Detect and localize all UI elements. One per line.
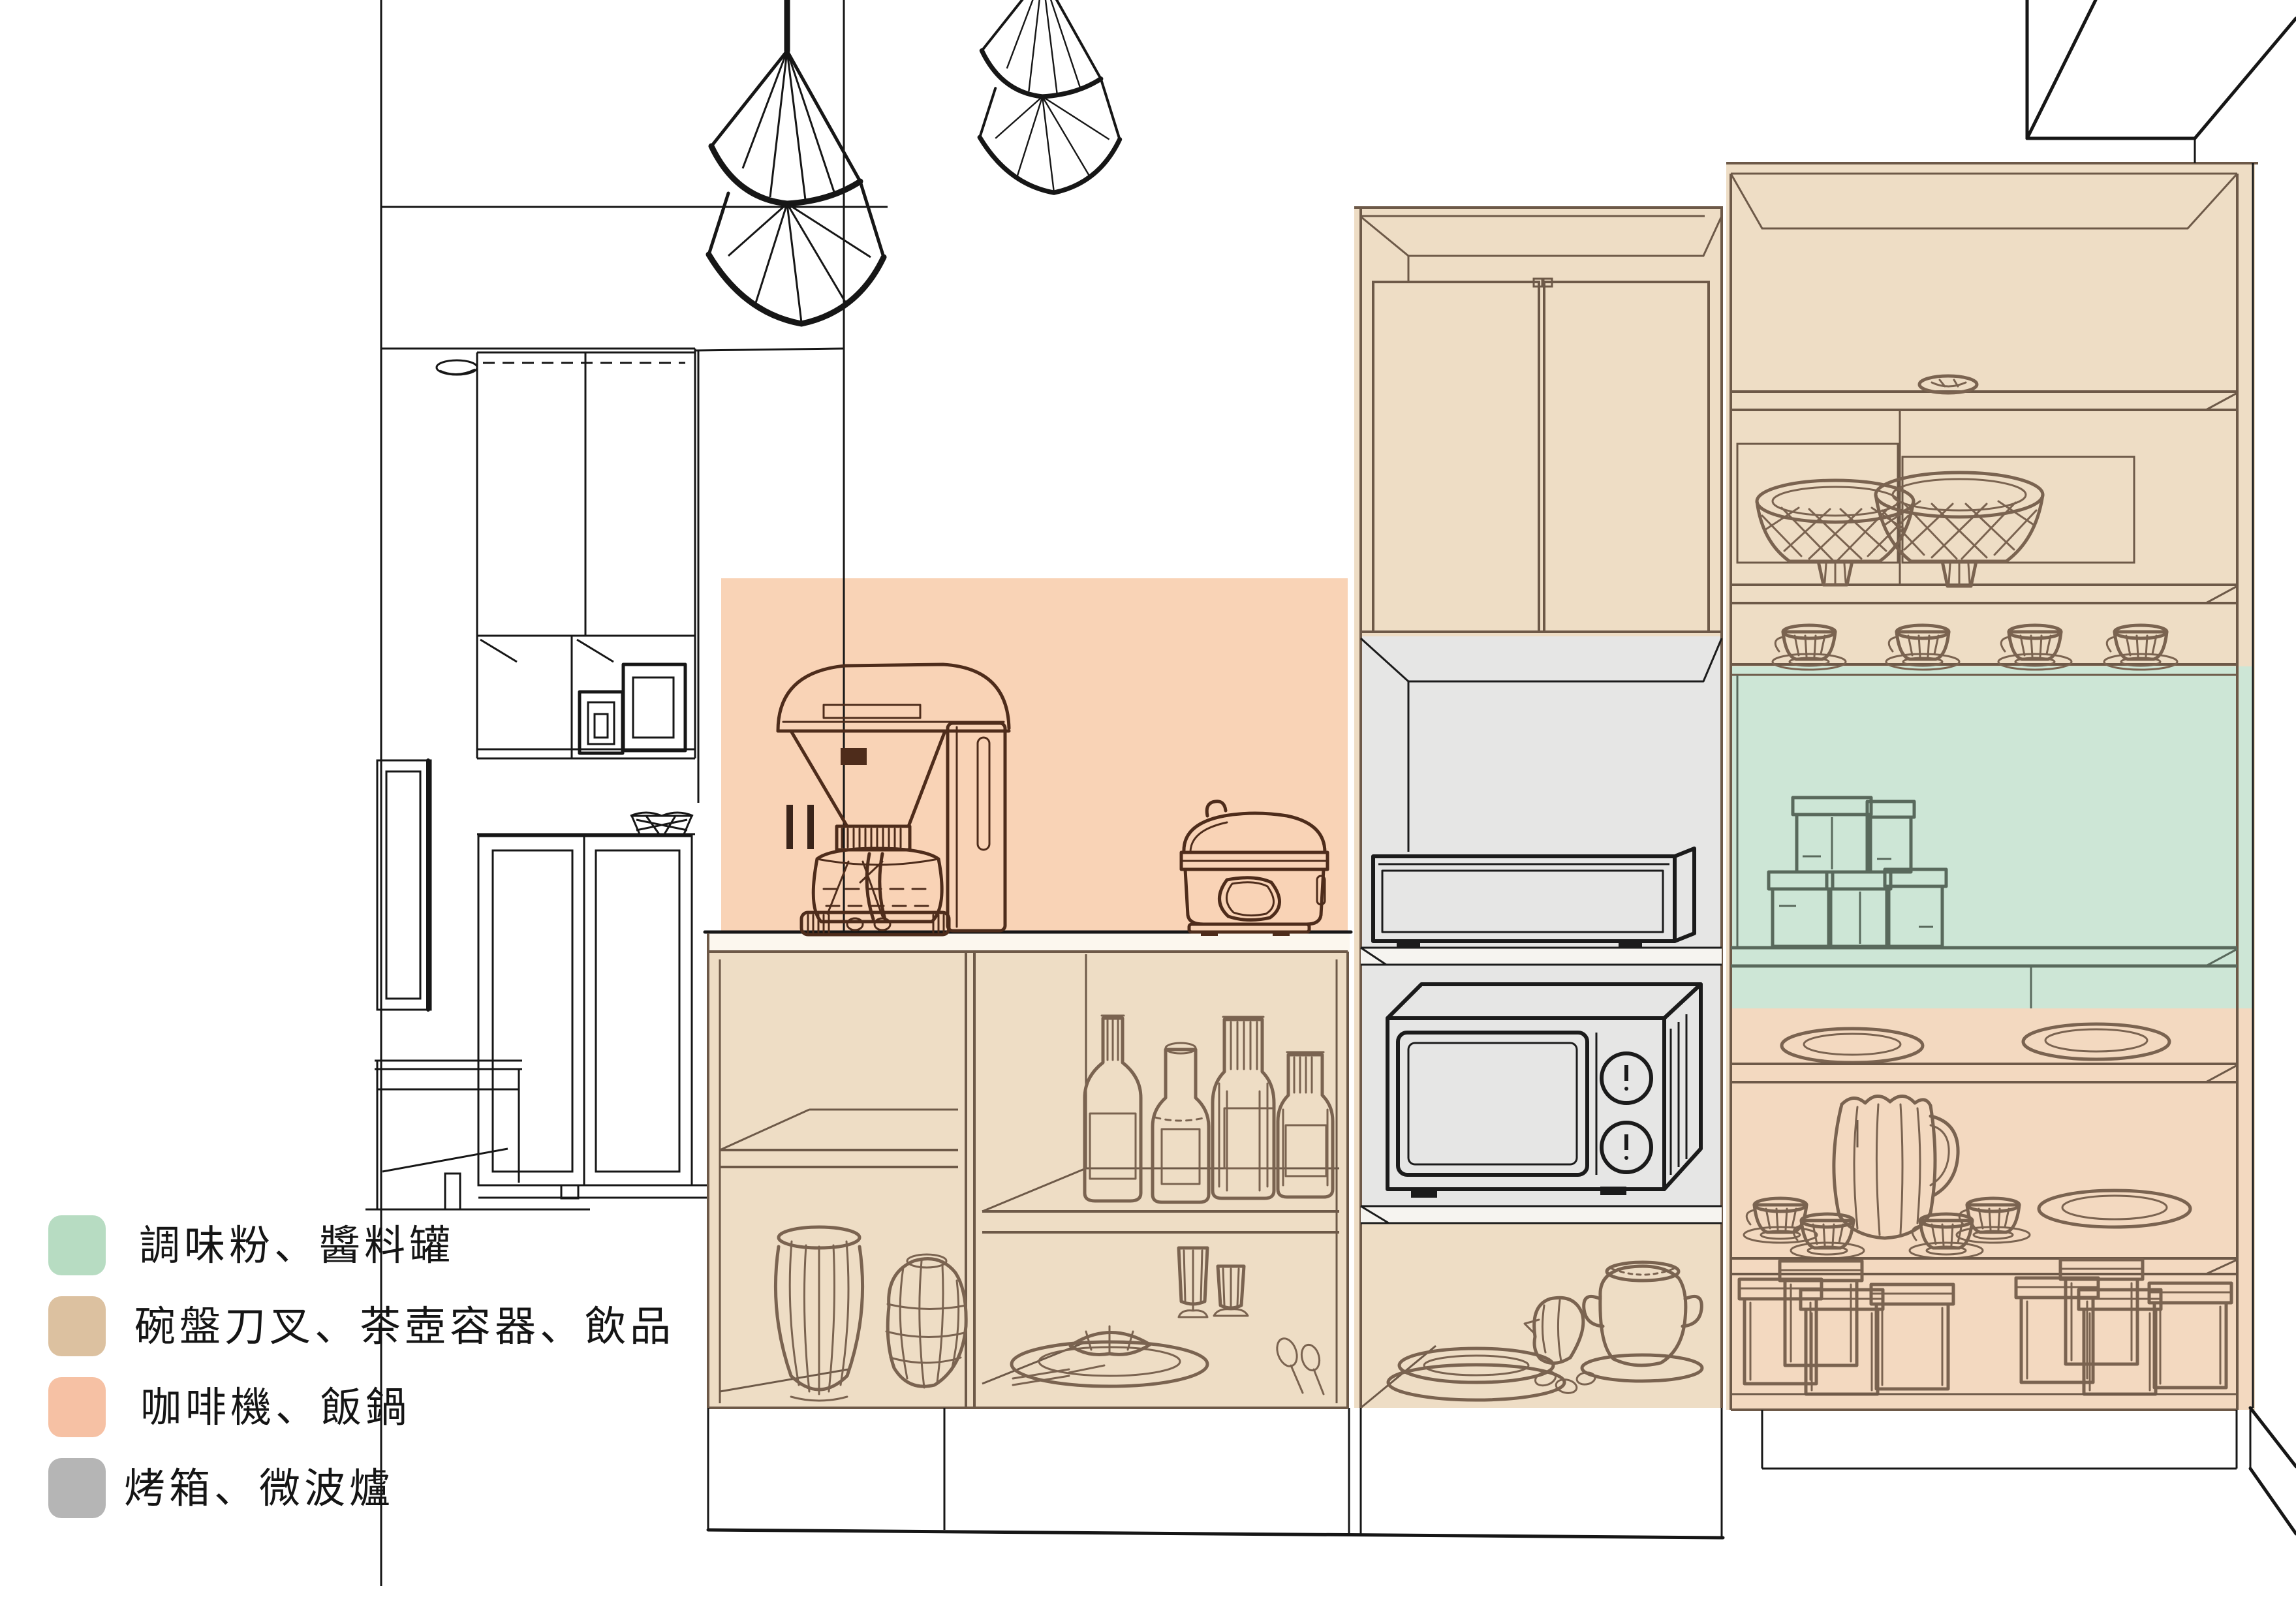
legend-swatch-green [48,1215,106,1275]
legend-swatch-tan [48,1296,106,1356]
legend-swatch-gray [48,1458,106,1518]
legend-item-oven-microwave: 烤箱、微波爐 [48,1458,394,1518]
kitchen-storage-diagram: 調味粉、醬料罐 碗盤刀叉、茶壺容器、飲品 咖啡機、飯鍋 烤箱、微波爐 [0,0,2296,1618]
legend-swatch-peach [48,1377,106,1437]
zone-tan-warm-right-lower [1731,1008,2253,1410]
woven-basket [630,813,693,834]
legend-item-dishes: 碗盤刀叉、茶壺容器、飲品 [48,1296,675,1356]
legend-label-seasoning: 調味粉、醬料罐 [139,1223,454,1269]
zone-gray-oven-microwave [1361,636,1722,1215]
legend: 調味粉、醬料罐 碗盤刀叉、茶壺容器、飲品 咖啡機、飯鍋 烤箱、微波爐 [48,1215,675,1518]
legend-item-seasoning: 調味粉、醬料罐 [48,1215,454,1275]
plinth-and-floor [708,1408,2296,1538]
wall-corner-top-right [2027,0,2296,163]
tv [377,760,431,1010]
legend-label-dishes: 碗盤刀叉、茶壺容器、飲品 [134,1304,675,1350]
microwave-shelf [1361,1206,1722,1223]
legend-label-oven-microwave: 烤箱、微波爐 [124,1466,394,1512]
legend-label-coffee-rice: 咖啡機、飯鍋 [140,1385,411,1431]
oven-shelf [1361,948,1722,965]
legend-item-coffee-rice: 咖啡機、飯鍋 [48,1377,411,1437]
pendant-lamp-2 [980,0,1119,193]
zone-green-seasoning [1731,666,2253,1008]
pendant-lamp-1 [709,0,884,324]
picture-frames [580,664,685,753]
